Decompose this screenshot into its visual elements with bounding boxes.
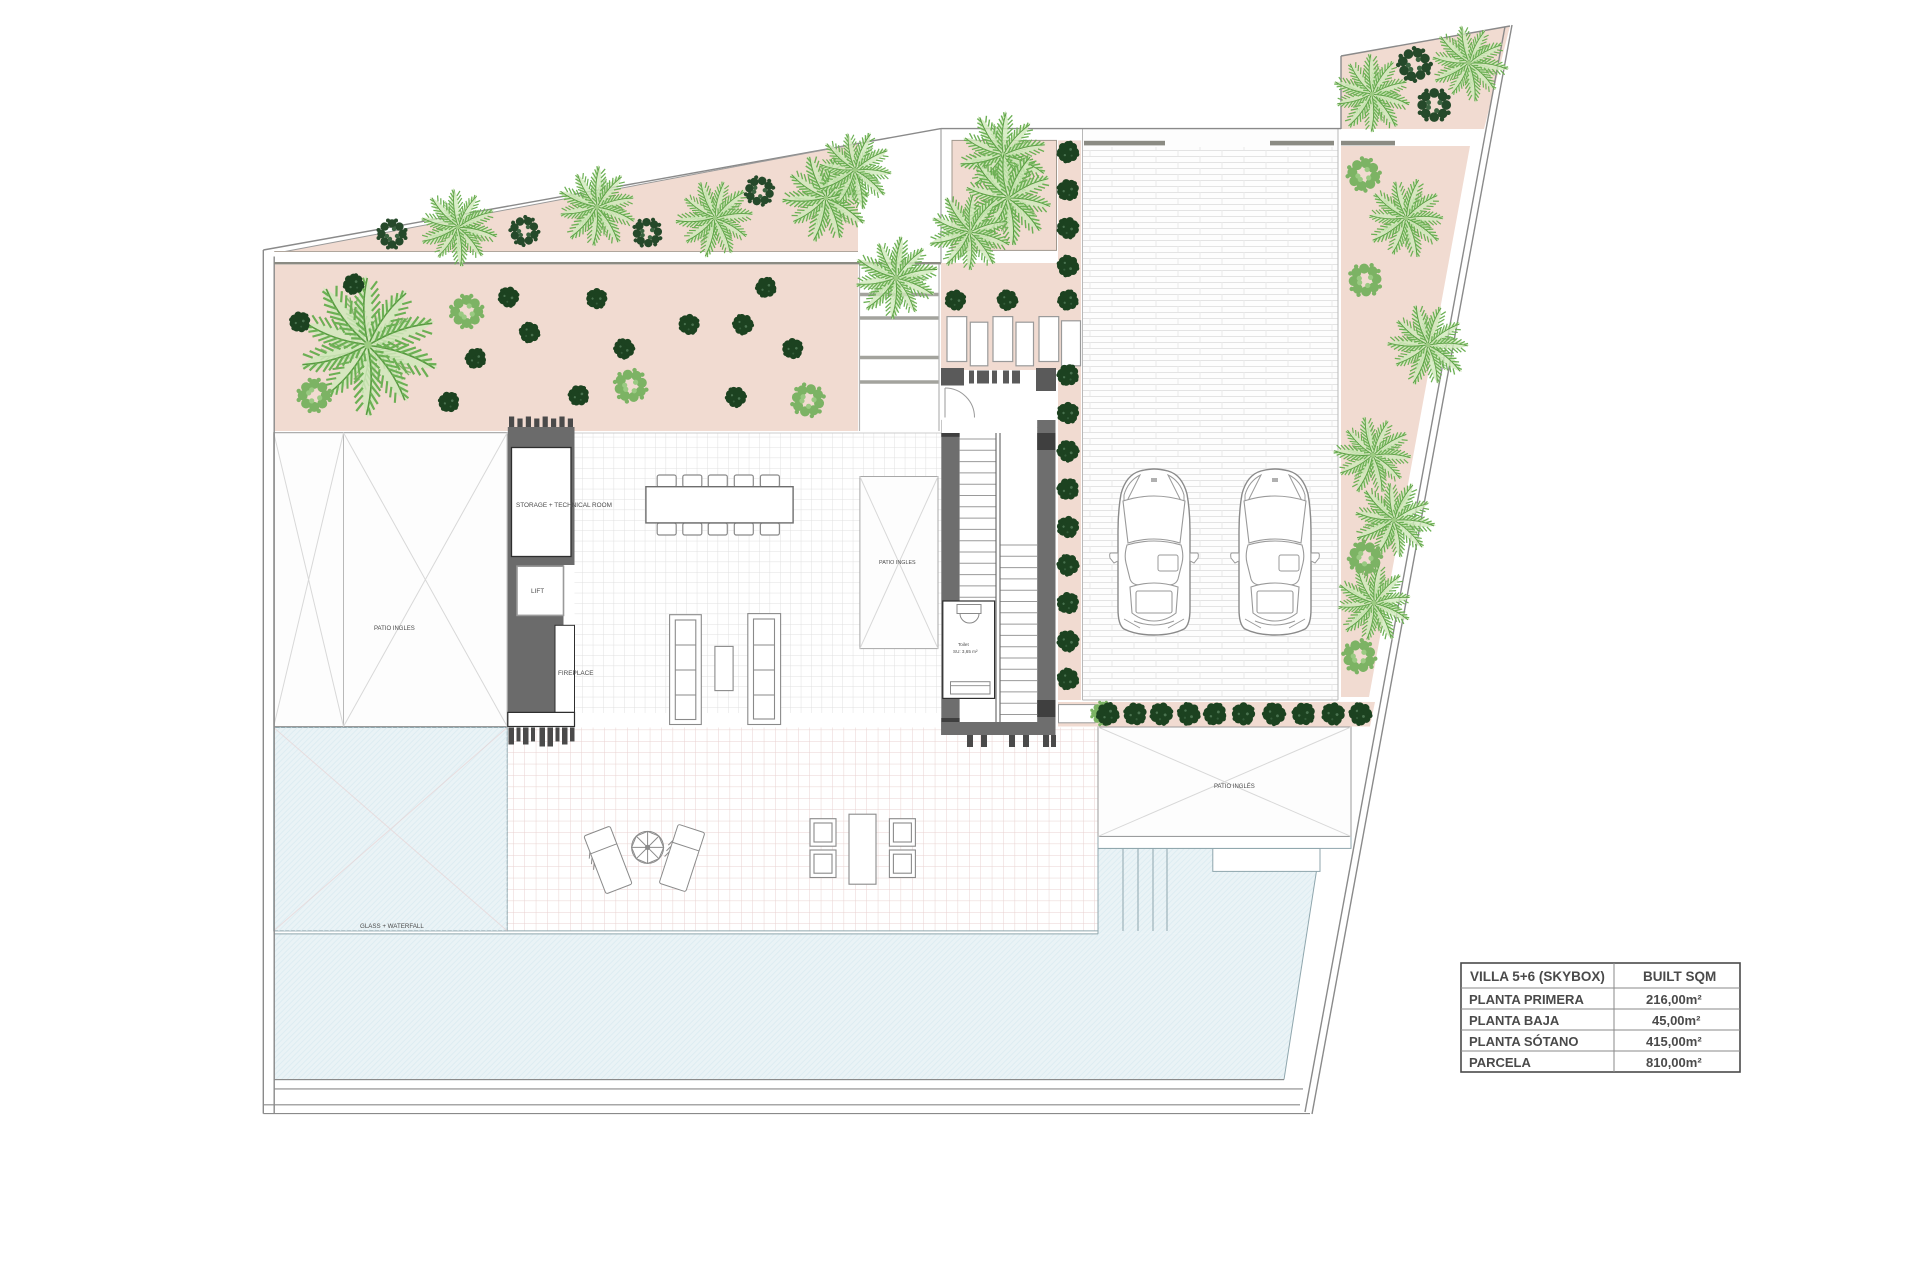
svg-text:PLANTA BAJA: PLANTA BAJA	[1469, 1013, 1560, 1028]
svg-text:PATIO INGLES: PATIO INGLES	[879, 560, 916, 566]
svg-text:PATIO INGLES: PATIO INGLES	[374, 626, 415, 632]
svg-text:SU: 3,65 m²: SU: 3,65 m²	[953, 649, 978, 654]
svg-text:415,00m²: 415,00m²	[1646, 1034, 1702, 1049]
svg-text:PLANTA PRIMERA: PLANTA PRIMERA	[1469, 992, 1584, 1007]
svg-text:VILLA 5+6 (SKYBOX): VILLA 5+6 (SKYBOX)	[1470, 969, 1605, 984]
svg-text:PLANTA SÓTANO: PLANTA SÓTANO	[1469, 1034, 1579, 1049]
svg-text:45,00m²: 45,00m²	[1652, 1013, 1701, 1028]
svg-text:PATIO INGLÉS: PATIO INGLÉS	[1214, 783, 1255, 790]
svg-text:216,00m²: 216,00m²	[1646, 992, 1702, 1007]
svg-text:LIFT: LIFT	[531, 588, 544, 595]
svg-text:STORAGE + TECHNICAL ROOM: STORAGE + TECHNICAL ROOM	[516, 502, 612, 509]
svg-text:Toilet: Toilet	[958, 642, 969, 647]
svg-text:810,00m²: 810,00m²	[1646, 1055, 1702, 1070]
svg-text:BUILT SQM: BUILT SQM	[1643, 969, 1716, 984]
svg-text:FIREPLACE: FIREPLACE	[558, 670, 594, 677]
svg-text:GLASS + WATERFALL: GLASS + WATERFALL	[360, 923, 424, 930]
svg-text:PARCELA: PARCELA	[1469, 1055, 1531, 1070]
